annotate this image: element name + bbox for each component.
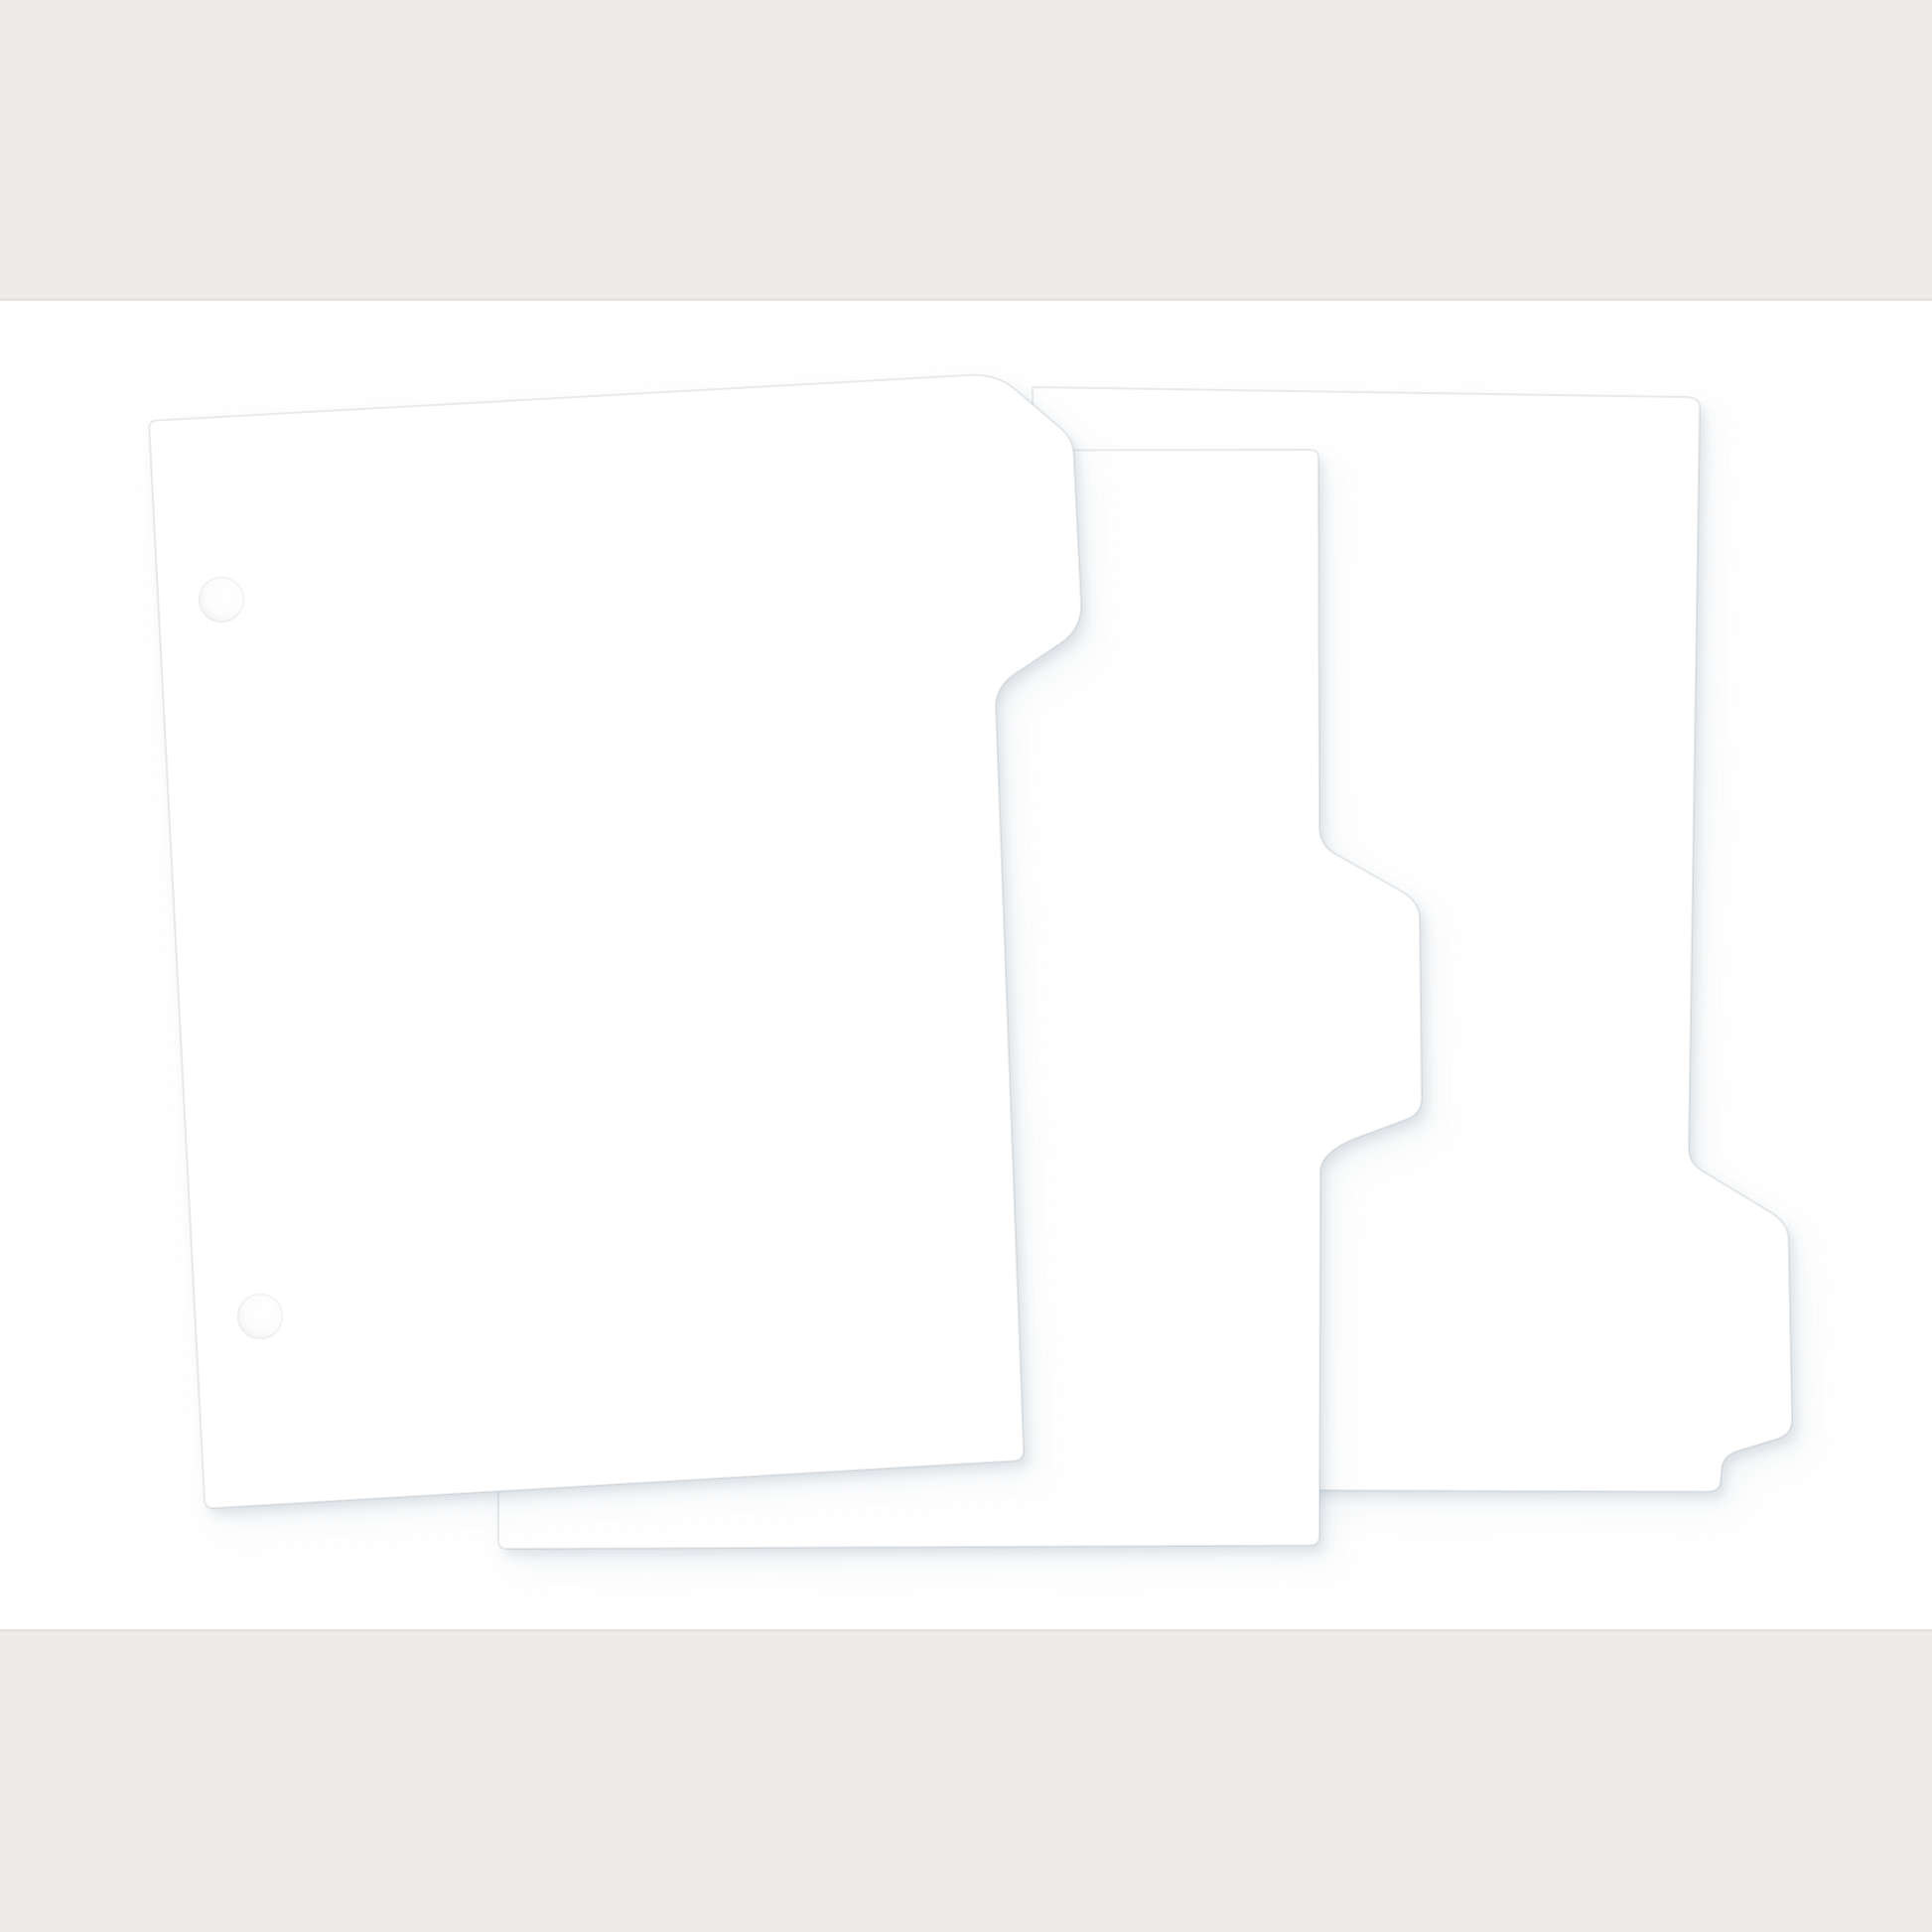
bottom-background-band	[0, 1632, 1932, 1932]
top-background-band	[0, 0, 1932, 299]
punch-hole-lower	[238, 1295, 283, 1339]
divider-sheet-tab-top	[149, 375, 1081, 1508]
product-photo-scene	[0, 0, 1932, 1932]
punch-hole-upper	[200, 578, 244, 622]
divider-sheets-photo	[0, 0, 1932, 1932]
top-band-edge-line	[0, 298, 1932, 301]
bottom-band-edge-line	[0, 1629, 1932, 1632]
